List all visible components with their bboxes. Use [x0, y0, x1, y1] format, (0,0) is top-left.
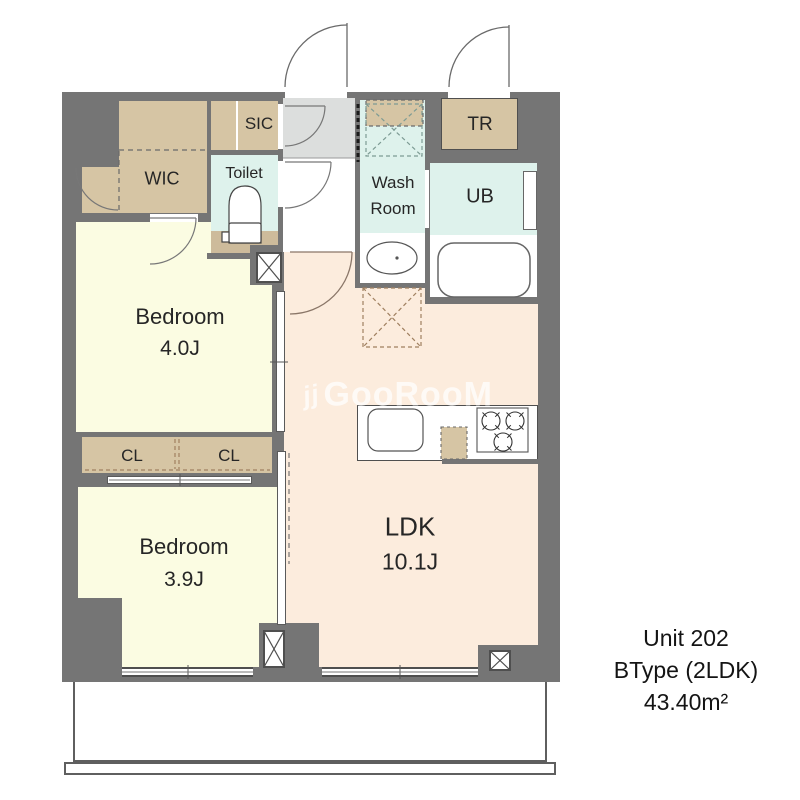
bedroom1-wic-door-gap: [150, 214, 198, 222]
entrance-door-gap: [285, 85, 347, 98]
label-wic: WIC: [145, 169, 180, 190]
watermark-text: GooRooM: [324, 376, 493, 415]
label-cl-right: CL: [218, 446, 240, 466]
room-entrance-floor: [283, 98, 355, 158]
balcony-rail: [64, 762, 556, 775]
bedroom1-ldk-partition: [276, 291, 285, 432]
balcony: [73, 682, 547, 762]
ldk-window: [322, 667, 478, 677]
bedroom2-ldk-partition: [277, 451, 286, 625]
label-ldk-name: LDK: [385, 512, 436, 543]
label-bedroom1-name: Bedroom: [135, 304, 224, 330]
label-toilet: Toilet: [225, 165, 262, 183]
label-cl-left: CL: [121, 446, 143, 466]
label-bedroom1-size: 4.0J: [160, 337, 200, 361]
unit-number: Unit 202: [586, 622, 786, 654]
sic-door-gap: [278, 104, 283, 149]
bedroom2-window: [122, 667, 253, 677]
bedroom2-corner-wall: [78, 598, 122, 668]
washroom-vanity-area: [360, 233, 425, 283]
floorplan-canvas: WIC SIC Toilet Wash Room UB TR Bedroom 4…: [0, 0, 800, 800]
pipe-space-bottom: [263, 630, 285, 668]
label-ldk-size: 10.1J: [382, 549, 438, 576]
ub-tub-area: [430, 235, 537, 297]
toilet-bedroom-wall: [207, 253, 250, 259]
room-wic-ext-floor: [82, 167, 119, 213]
room-cl-floor: [82, 437, 272, 473]
pipe-space-top: [256, 252, 282, 283]
unit-area: 43.40m²: [586, 686, 786, 718]
bedroom2-closet-doors: [107, 476, 252, 484]
entrance-door-swing: [285, 23, 347, 87]
label-bedroom2-size: 3.9J: [164, 568, 204, 592]
pipe-space-corner: [489, 650, 511, 671]
unit-type: BType (2LDK): [586, 654, 786, 686]
room-hallway-floor: [283, 158, 357, 252]
unit-info: Unit 202 BType (2LDK) 43.40m²: [586, 622, 786, 718]
label-bedroom2-name: Bedroom: [139, 534, 228, 560]
kitchen-base-wall: [442, 459, 538, 464]
room-wic-floor: [119, 101, 207, 213]
tr-door-swing: [449, 25, 509, 87]
label-sic: SIC: [245, 114, 273, 134]
label-tr: TR: [467, 114, 492, 136]
watermark-logo-icon: jj: [300, 378, 323, 412]
label-ub: UB: [466, 186, 494, 209]
watermark: jj GooRooM: [303, 376, 493, 415]
tr-door-gap: [448, 85, 510, 98]
label-washroom-line1: Wash: [372, 173, 415, 193]
ub-door-gap: [425, 170, 429, 228]
toilet-door-gap: [278, 161, 283, 207]
label-washroom-line2: Room: [370, 199, 415, 219]
ub-counter: [523, 171, 537, 230]
